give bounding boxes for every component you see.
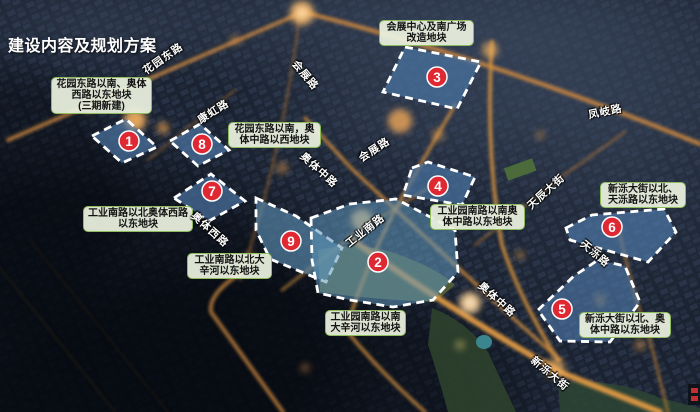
svg-text:9: 9: [287, 234, 295, 249]
svg-text:8: 8: [198, 137, 206, 152]
svg-text:7: 7: [208, 184, 216, 199]
svg-text:5: 5: [558, 302, 566, 317]
svg-text:4: 4: [434, 179, 442, 194]
svg-text:2: 2: [374, 255, 382, 270]
svg-text:1: 1: [125, 134, 133, 149]
svg-text:6: 6: [608, 220, 616, 235]
svg-text:3: 3: [433, 70, 441, 85]
